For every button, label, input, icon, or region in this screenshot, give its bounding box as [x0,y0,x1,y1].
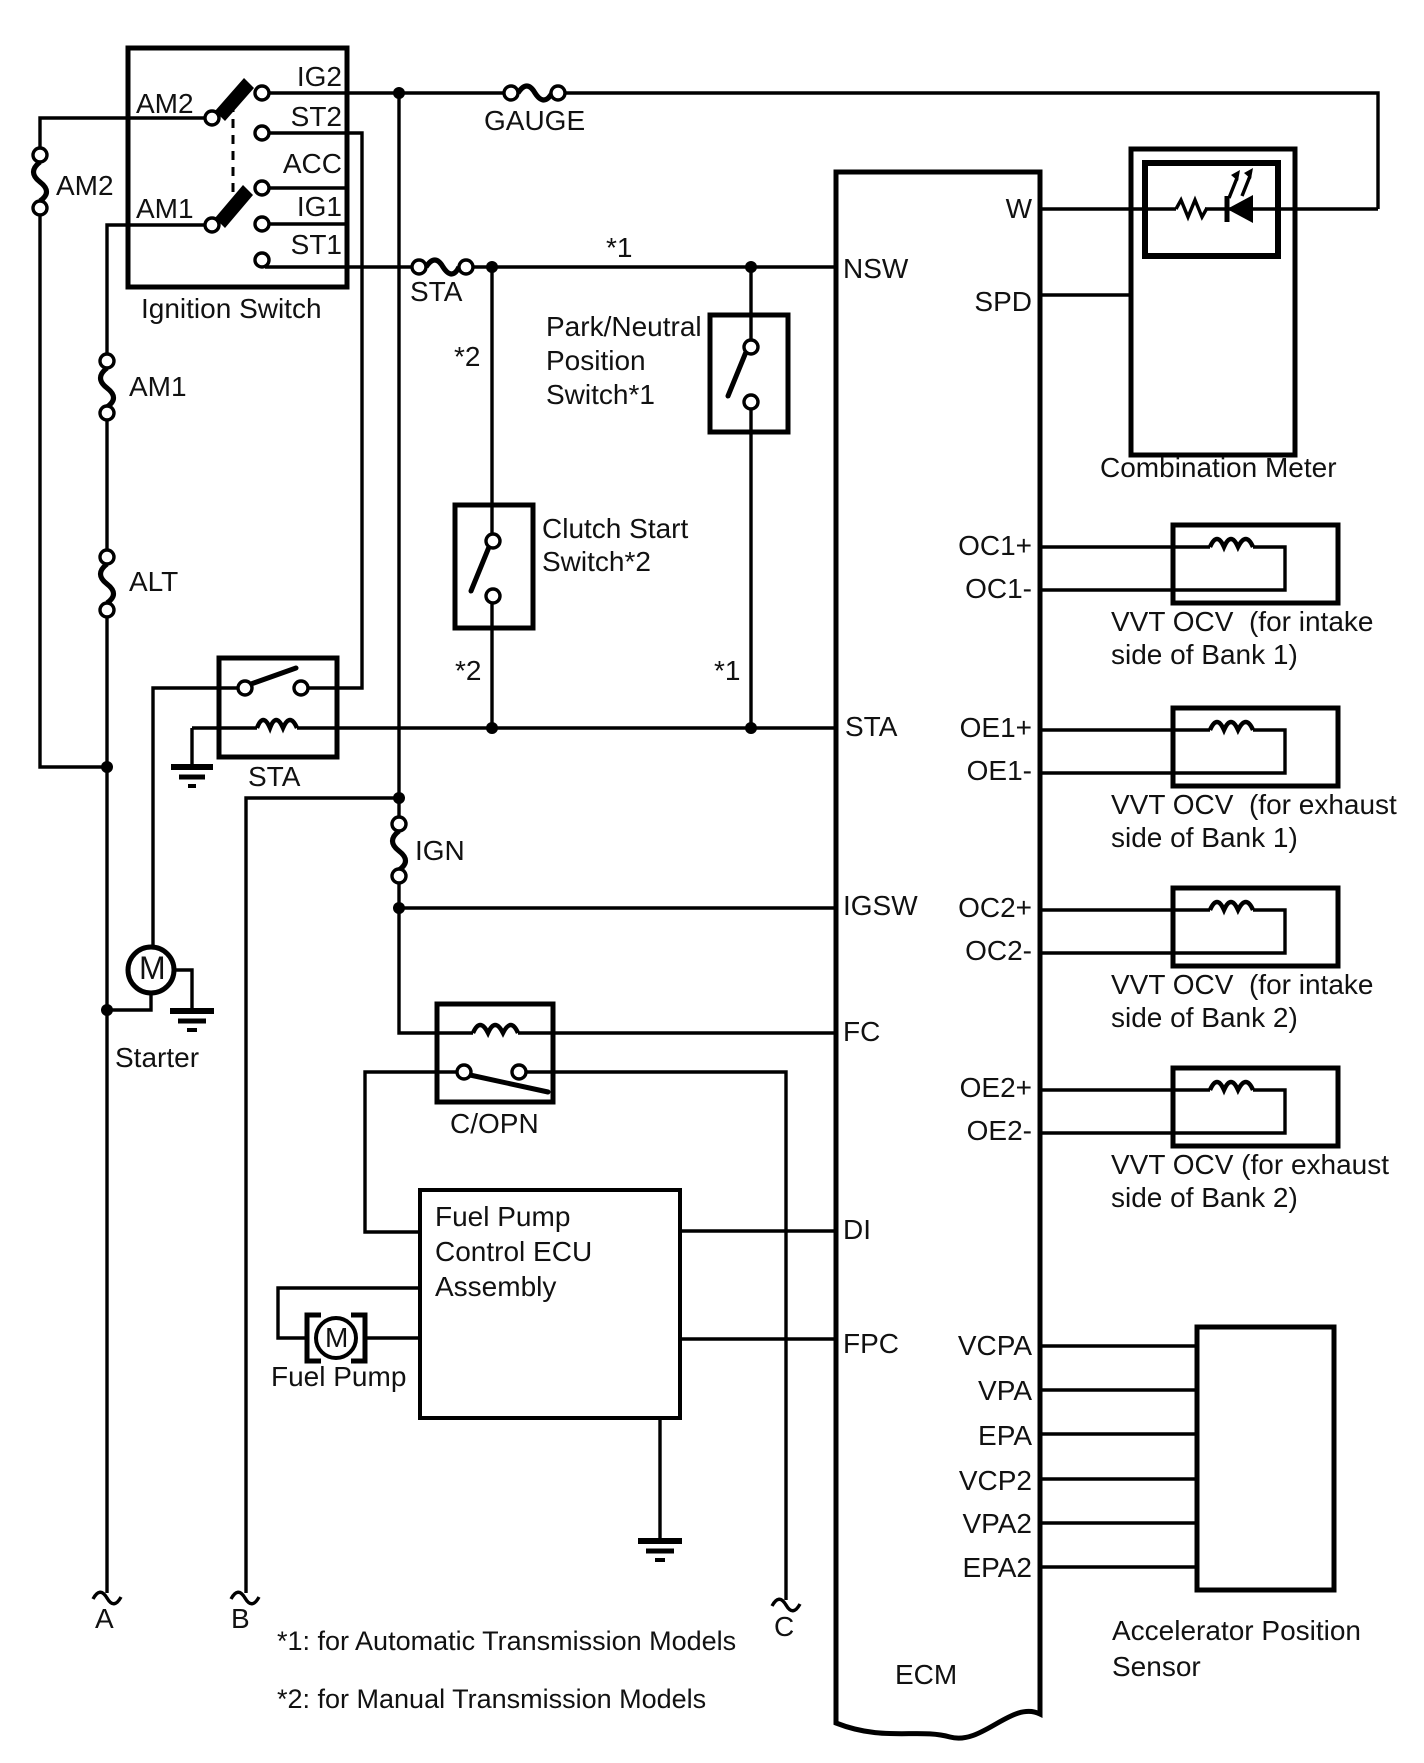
ignition-terminal-st2: ST2 [291,102,342,132]
ecm-terminal-vpa: VPA [978,1376,1032,1406]
ignition-terminal-ig1: IG1 [297,192,342,222]
wiring-diagram: AM2 AM1 IG2 ST2 ACC IG1 ST1 Ignition Swi… [0,0,1424,1763]
ecm-terminal-oc2p: OC2+ [958,893,1032,923]
junction-dot [486,261,498,273]
ecm-terminal-oe1p: OE1+ [960,713,1032,743]
pnp-switch-label-2: Position [546,346,646,376]
wire-oe1 [1040,730,1285,773]
ignition-terminal-st1: ST1 [291,230,342,260]
pnp-switch-label-3: Switch*1 [546,380,655,410]
copn-relay-label: C/OPN [450,1109,539,1139]
vvt-ocv-1-label-2: side of Bank 1) [1111,640,1298,670]
footnote-2: *2: for Manual Transmission Models [277,1684,706,1714]
ground-starter [170,1011,214,1030]
ignition-terminal-am2: AM2 [136,89,194,119]
vvt-coil-3 [1210,902,1253,910]
ignition-switch-label: Ignition Switch [141,294,322,324]
fuse-sta-symbol [412,260,473,274]
ecm-terminal-oc1p: OC1+ [958,531,1032,561]
contact-ig1 [255,217,269,231]
copn-relay-arm [470,1075,548,1092]
ecm-terminal-fpc: FPC [843,1329,899,1359]
clutch-switch-label-2: Switch*2 [542,547,651,577]
starter-motor-m: M [139,953,166,983]
fuse-am2-symbol [33,148,47,215]
fuel-pump-label: Fuel Pump [271,1362,406,1392]
note-star1-nsw: *1 [606,233,632,263]
ecm-terminal-oe2m: OE2- [967,1116,1032,1146]
contact-am2 [205,111,219,125]
ignition-terminal-acc: ACC [283,149,342,179]
ecm-terminal-oc2m: OC2- [965,936,1032,966]
ecm-terminal-sta: STA [845,712,897,742]
vvt-coil-2 [1210,722,1253,730]
ecm-terminal-oe1m: OE1- [967,756,1032,786]
fuse-gauge-label: GAUGE [484,106,585,136]
sta-relay-label: STA [248,762,300,792]
wiring-diagram-canvas [0,0,1424,1763]
clutch-switch-label-1: Clutch Start [542,514,688,544]
ground-sta-relay [171,767,213,786]
ecm-terminal-epa: EPA [978,1421,1032,1451]
sta-relay-coil [257,720,297,728]
contact-am1 [205,218,219,232]
accel-sensor-label-1: Accelerator Position [1112,1616,1361,1646]
ecm-terminal-spd: SPD [974,287,1032,317]
ignition-switch-internals [205,78,269,267]
fuse-alt-symbol [100,550,114,617]
wire-am1-a-line [107,225,128,1593]
clutch-switch-arm [471,547,489,591]
led-arrow-shaft [1242,176,1250,196]
junction-dot [393,902,405,914]
connector-c-label: C [774,1612,794,1642]
connector-a-label: A [95,1604,114,1634]
junction-dot [745,722,757,734]
ecm-terminal-vcpa: VCPA [958,1331,1032,1361]
led-triangle [1227,195,1253,223]
vvt-ocv-4-label-1: VVT OCV (for exhaust [1111,1150,1389,1180]
ecm-terminal-oe2p: OE2+ [960,1073,1032,1103]
ecm-terminal-oc1m: OC1- [965,574,1032,604]
ecm-terminal-vpa2: VPA2 [962,1509,1032,1539]
fp-ecu-label-2: Control ECU [435,1237,592,1267]
contact-acc [255,181,269,195]
fuse-am2-label: AM2 [56,171,114,201]
park-neutral-switch-internals [728,340,758,409]
starter-label: Starter [115,1043,199,1073]
fuse-ign-symbol [392,817,406,883]
fp-ecu-label-3: Assembly [435,1272,556,1302]
ecm-terminal-nsw: NSW [843,254,908,284]
vvt-coil-4 [1210,1082,1253,1090]
wire-accel-lines [1040,1346,1197,1567]
ignition-terminal-am1: AM1 [136,194,194,224]
junction-dot [393,792,405,804]
vvt-ocv-1-label-1: VVT OCV (for intake [1111,607,1373,637]
fuse-sta-label: STA [410,277,462,307]
wire-copn-c-line [526,1072,786,1600]
fuse-alt-label: ALT [129,567,178,597]
wire-fuel-pump-loop [278,1288,420,1338]
wire-oc1 [1040,547,1285,590]
sta-relay-internals [238,668,308,728]
copn-relay-internals [457,1025,548,1092]
ignition-terminal-ig2: IG2 [297,62,342,92]
fuse-ign-label: IGN [415,836,465,866]
fuse-am1-label: AM1 [129,372,187,402]
fuel-pump-motor-m: M [325,1323,348,1353]
contact-st1 [255,253,269,267]
wire-oe2 [1040,1090,1285,1133]
vvt-ocv-3-label-2: side of Bank 2) [1111,1003,1298,1033]
junction-dot [101,761,113,773]
sta-relay-arm [251,668,296,684]
ecm-terminal-w: W [1006,194,1032,224]
wire-am2-feed [40,118,128,767]
ecm-terminal-di: DI [843,1215,871,1245]
clutch-start-switch-box [455,505,533,628]
contact-st2 [255,126,269,140]
junction-dot [745,261,757,273]
fuse-gauge-symbol [504,86,565,100]
vvt-coil-1 [1210,539,1253,547]
pnp-switch-label-1: Park/Neutral [546,312,702,342]
clutch-switch-internals [471,534,500,603]
contact-ig2 [255,86,269,100]
fp-ecu-label-1: Fuel Pump [435,1202,570,1232]
vvt-ocv-2-label-1: VVT OCV (for exhaust [1111,790,1397,820]
ecm-terminal-epa2: EPA2 [962,1553,1032,1583]
note-star2-lower: *2 [455,656,481,686]
footnote-1: *1: for Automatic Transmission Models [277,1626,736,1656]
copn-relay-coil [473,1025,518,1033]
vvt-ocv-3-label-1: VVT OCV (for intake [1111,970,1373,1000]
park-neutral-switch-box [710,315,788,432]
vvt-ocv-2-label-2: side of Bank 1) [1111,823,1298,853]
vvt-ocv-4-label-2: side of Bank 2) [1111,1183,1298,1213]
ground-fuel-pump-ecu [638,1541,682,1560]
meter-lamp-symbol [1176,168,1253,223]
note-star1-lower: *1 [714,656,740,686]
ecm-terminal-igsw: IGSW [843,891,918,921]
combination-meter-box [1131,149,1295,455]
junction-dot [101,1004,113,1016]
junction-dot [486,722,498,734]
wire-ig2-vertical-ign [399,93,473,1033]
note-star2-upper: *2 [454,342,480,372]
combination-meter-label: Combination Meter [1100,453,1337,483]
accel-sensor-label-2: Sensor [1112,1652,1201,1682]
led-arrow-shaft [1229,178,1237,198]
fuse-am1-symbol [100,354,114,420]
ecm-label: ECM [895,1660,957,1690]
accel-position-sensor-box [1197,1327,1334,1590]
ecm-terminal-fc: FC [843,1017,880,1047]
wire-oc2 [1040,910,1285,953]
resistor-symbol [1176,200,1207,217]
connector-c-symbol [772,1599,800,1611]
pnp-switch-arm [728,352,746,396]
connector-b-label: B [231,1604,250,1634]
wire-b-branch [246,798,399,1593]
ignition-rotor-arm-am2 [215,78,254,121]
junction-dot [393,87,405,99]
ecm-terminal-vcp2: VCP2 [959,1466,1032,1496]
